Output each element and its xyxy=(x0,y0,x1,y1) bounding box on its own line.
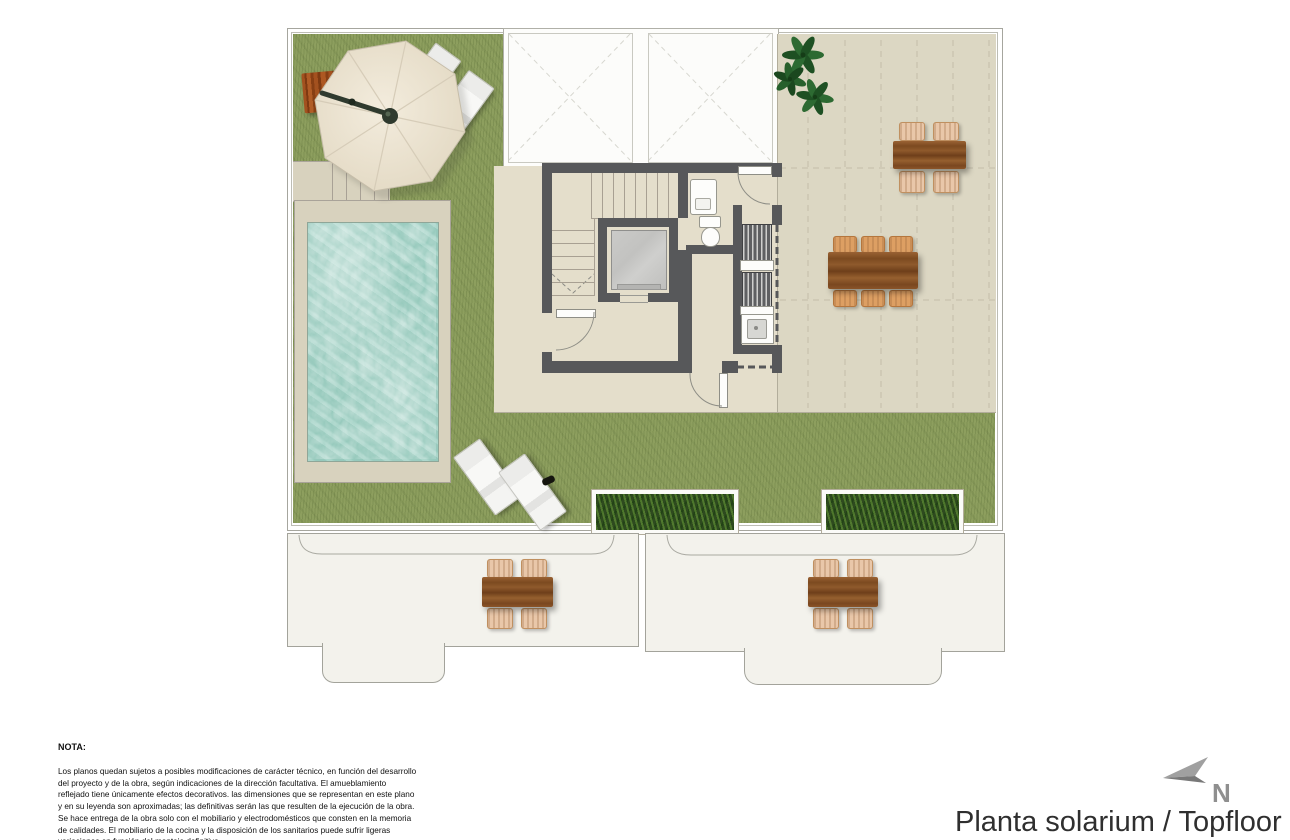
chair xyxy=(487,608,513,629)
planter xyxy=(592,490,738,534)
pool-water xyxy=(307,222,439,462)
elevator-shaft-wall xyxy=(669,218,678,302)
roof-terrace xyxy=(777,34,996,413)
chair xyxy=(813,608,839,629)
note-heading: NOTA: xyxy=(58,742,86,752)
wall xyxy=(542,361,692,373)
chair xyxy=(889,290,913,307)
utility-unit xyxy=(742,224,772,262)
pool-steps xyxy=(293,161,390,202)
utility-shelf xyxy=(740,260,774,271)
dining-table-4 xyxy=(482,577,553,607)
note-body: Los planos quedan sujetos a posibles mod… xyxy=(58,766,418,840)
wall xyxy=(542,163,552,313)
chair xyxy=(833,236,857,253)
stairs-upper-flight xyxy=(591,173,678,219)
page-title: Planta solarium / Topfloor xyxy=(955,806,1282,839)
wall xyxy=(772,205,782,225)
elevator-shaft-wall xyxy=(598,218,678,227)
utility-unit xyxy=(742,272,772,307)
wall xyxy=(678,165,688,218)
side-table xyxy=(301,71,338,114)
chair xyxy=(813,559,839,578)
chair xyxy=(847,608,873,629)
planter xyxy=(822,490,963,534)
wall xyxy=(733,345,782,354)
skylight-void-cell xyxy=(648,33,773,163)
door-leaf xyxy=(738,166,772,175)
door-leaf xyxy=(719,373,728,408)
chair xyxy=(889,236,913,253)
door-leaf xyxy=(556,309,596,318)
chair xyxy=(899,122,925,141)
north-arrow-icon: N xyxy=(1163,757,1231,808)
dining-table-4 xyxy=(893,141,966,169)
stairs-lower-flight xyxy=(552,218,595,296)
terrace-notch xyxy=(322,643,445,683)
elevator-shaft-wall xyxy=(648,293,678,302)
elevator-shaft-wall xyxy=(598,218,607,302)
chair xyxy=(847,559,873,578)
chair xyxy=(521,608,547,629)
elevator-cab xyxy=(611,230,667,290)
chair xyxy=(487,559,513,578)
compass-label: N xyxy=(1212,778,1231,808)
chair xyxy=(521,559,547,578)
wc-basin-bowl xyxy=(695,198,711,210)
terrace-notch xyxy=(744,648,942,685)
wall xyxy=(772,163,782,177)
wall xyxy=(722,361,738,373)
chair xyxy=(833,290,857,307)
chair xyxy=(933,171,959,193)
elevator-cab-sill xyxy=(617,284,661,290)
elevator-shaft-wall xyxy=(598,293,620,302)
wall xyxy=(678,250,692,361)
pool-steps-lines xyxy=(332,162,390,201)
chair xyxy=(861,290,885,307)
dining-table-6 xyxy=(828,252,918,289)
chair xyxy=(933,122,959,141)
utility-sink-drain xyxy=(754,326,758,330)
floor-plan-page: N NOTA: Los planos quedan sujetos a posi… xyxy=(0,0,1290,840)
chair xyxy=(899,171,925,193)
skylight-void-cell xyxy=(508,33,633,163)
wc-toilet-bowl xyxy=(701,227,720,247)
elevator-door-sill xyxy=(620,295,648,303)
lower-terrace-left xyxy=(287,533,639,647)
dining-table-4 xyxy=(808,577,878,607)
chair xyxy=(861,236,885,253)
